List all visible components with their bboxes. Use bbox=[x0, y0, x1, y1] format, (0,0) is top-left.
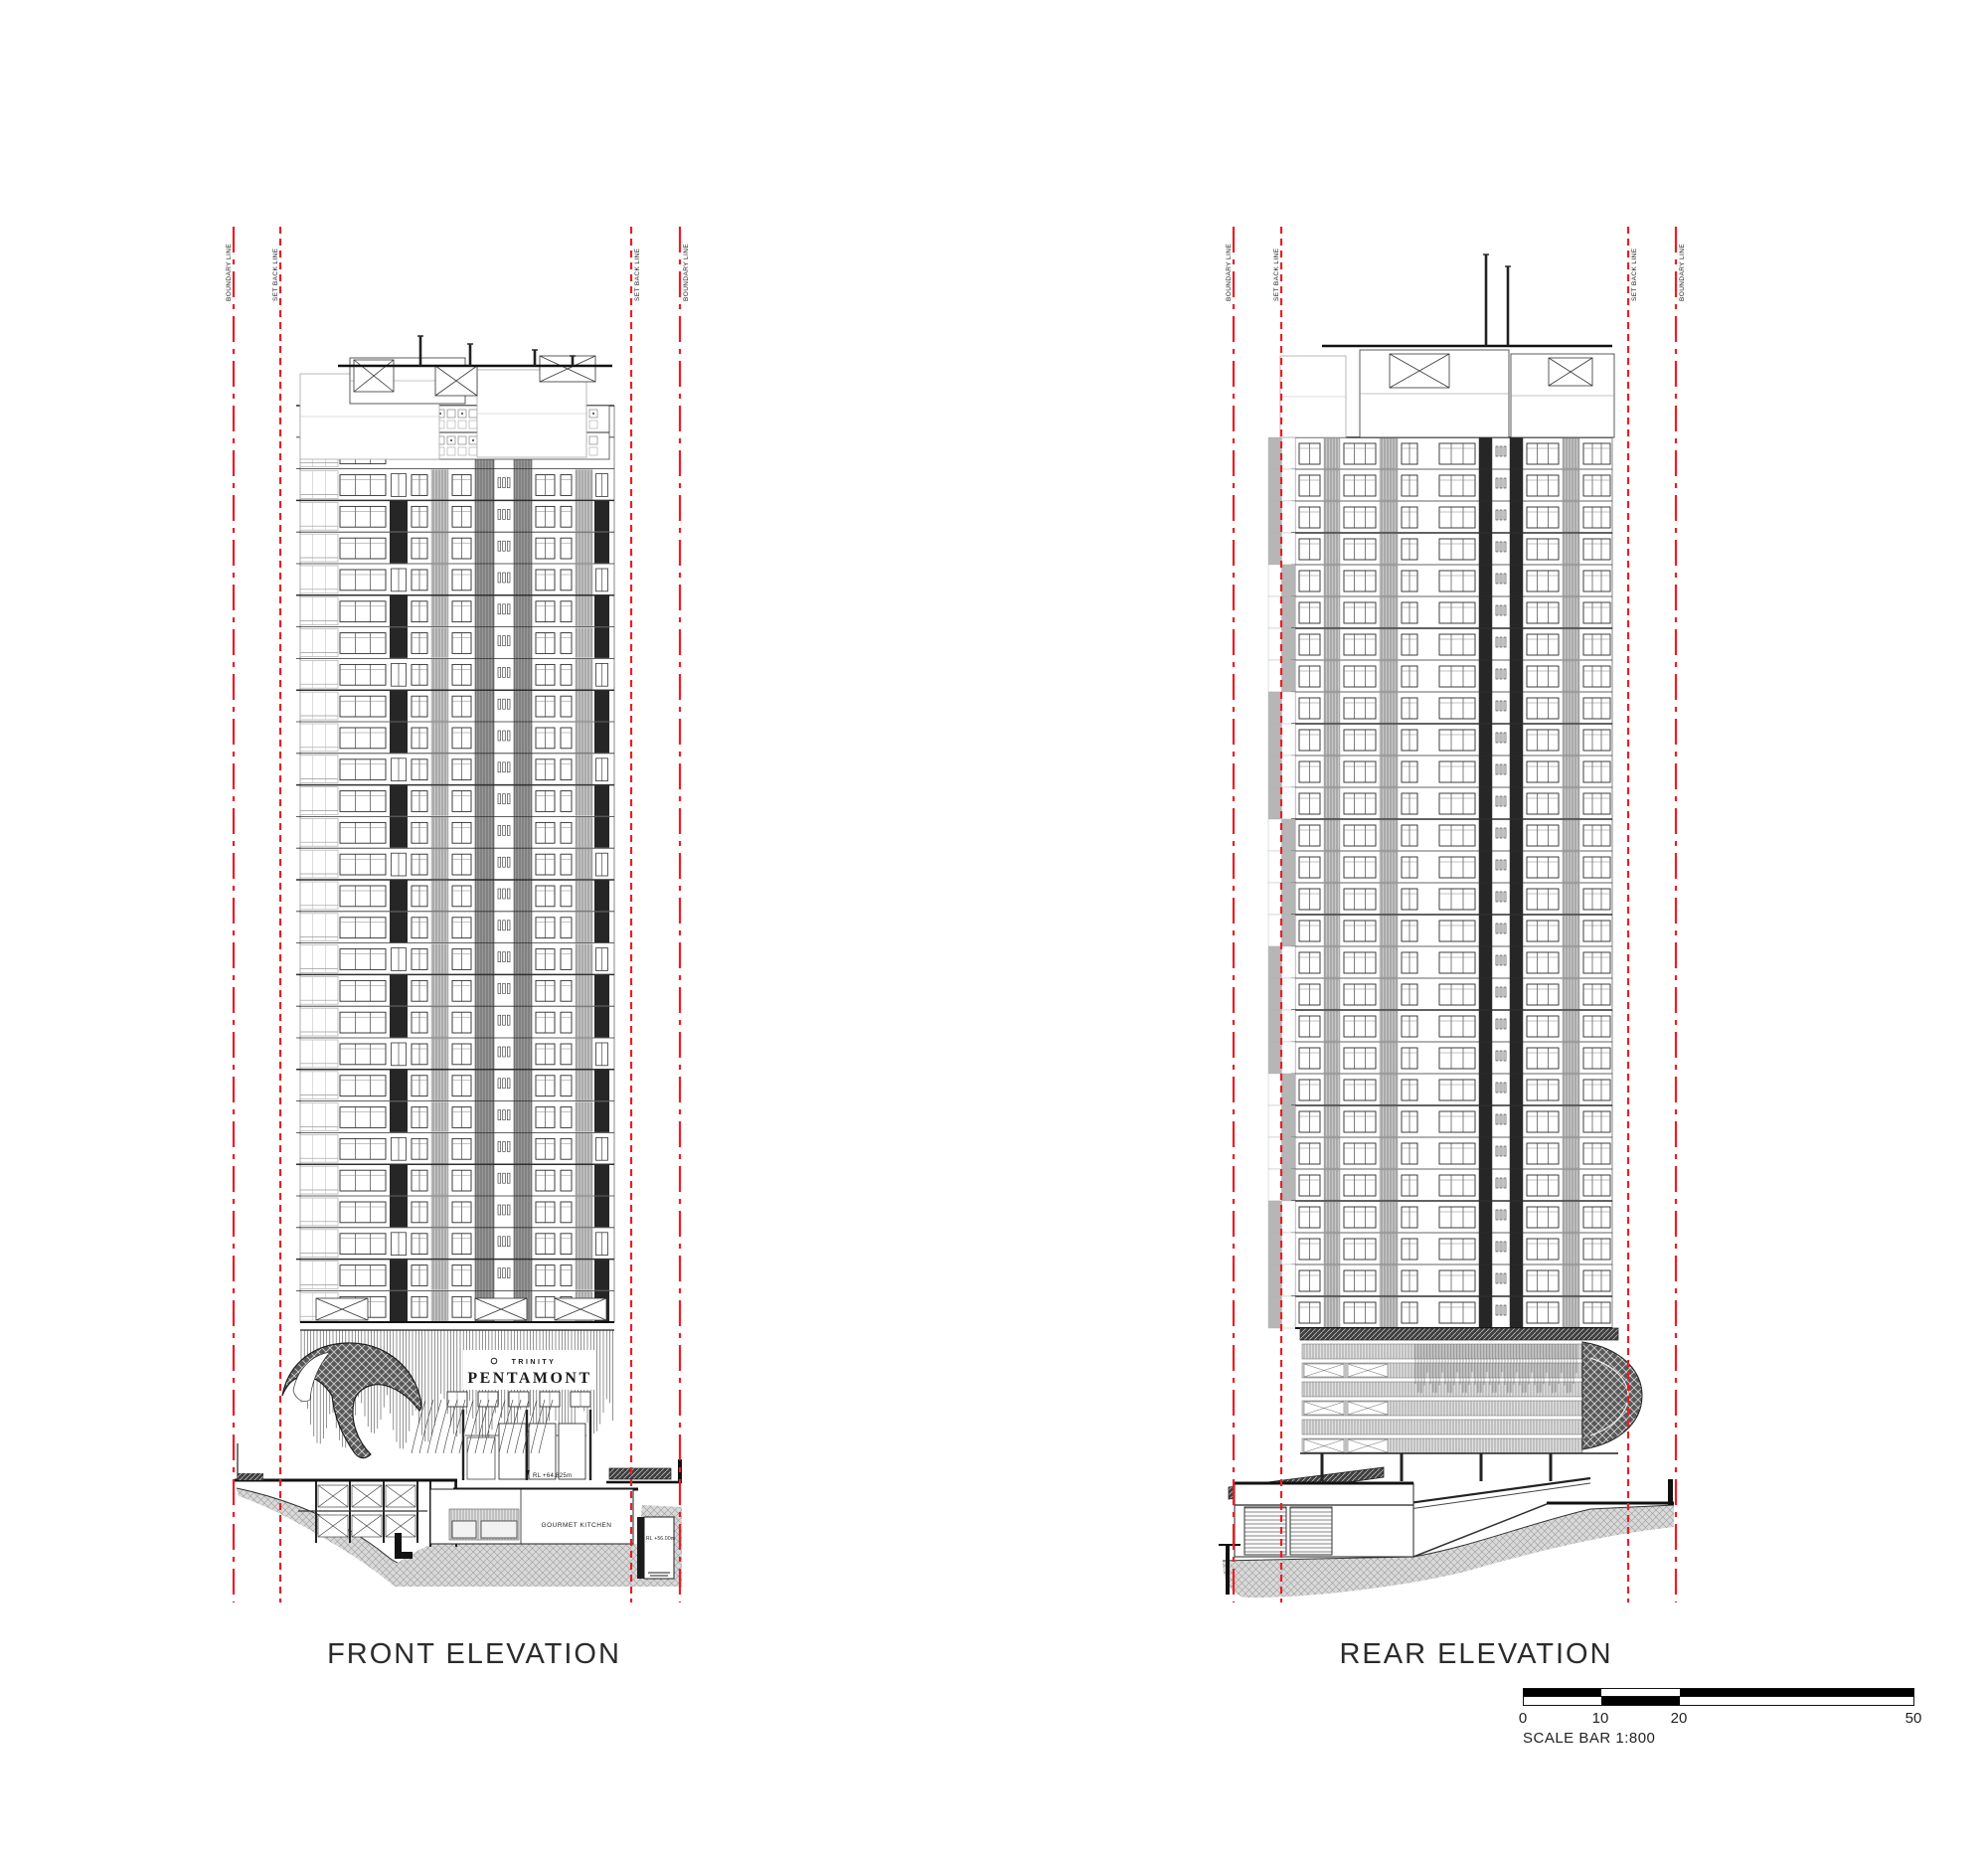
scale-bar-ticks: 0 10 20 50 bbox=[1523, 1710, 1914, 1728]
level-label-lower: RL +56.00m bbox=[646, 1536, 675, 1542]
front-elevation-group: TRINITYPENTAMONTRL +64.825mGOURMET KITCH… bbox=[235, 336, 682, 1587]
scale-segment bbox=[1524, 1689, 1601, 1696]
sign-name: PENTAMONT bbox=[467, 1370, 591, 1387]
boundary-line-label: BOUNDARY LINE bbox=[683, 244, 690, 301]
scale-bar-row-top bbox=[1523, 1688, 1914, 1697]
scale-segment bbox=[1601, 1689, 1680, 1696]
drawing-sheet: TRINITYPENTAMONTRL +64.825mGOURMET KITCH… bbox=[0, 0, 1988, 1854]
rear-elevation-group bbox=[1219, 254, 1674, 1598]
boundary-line-label: BOUNDARY LINE bbox=[226, 244, 233, 301]
level-label-upper: RL +64.825m bbox=[533, 1473, 572, 1479]
front-podium: TRINITYPENTAMONTRL +64.825mGOURMET KITCH… bbox=[235, 1298, 682, 1587]
rear-elevation-title: REAR ELEVATION bbox=[1339, 1638, 1612, 1671]
sign-brand: TRINITY bbox=[512, 1359, 557, 1366]
scale-segment bbox=[1680, 1689, 1913, 1696]
scale-segment bbox=[1601, 1697, 1680, 1705]
scale-tick: 0 bbox=[1519, 1710, 1527, 1727]
scale-bar: 0 10 20 50 SCALE BAR 1:800 bbox=[1523, 1688, 1914, 1747]
setback-line-label: SET BACK LINE bbox=[1273, 248, 1280, 301]
scale-tick: 50 bbox=[1905, 1710, 1922, 1727]
scale-bar-label: SCALE BAR 1:800 bbox=[1523, 1730, 1914, 1747]
elevation-drawing: TRINITYPENTAMONTRL +64.825mGOURMET KITCH… bbox=[0, 0, 1988, 1854]
room-label: GOURMET KITCHEN bbox=[542, 1522, 612, 1529]
setback-line-label: SET BACK LINE bbox=[272, 248, 279, 301]
scale-tick: 20 bbox=[1671, 1710, 1688, 1727]
setback-line-label: SET BACK LINE bbox=[1631, 248, 1638, 301]
scale-bar-row-bottom bbox=[1523, 1697, 1914, 1706]
scale-segment bbox=[1524, 1697, 1601, 1705]
boundary-line-label: BOUNDARY LINE bbox=[1226, 244, 1233, 301]
front-elevation-title: FRONT ELEVATION bbox=[327, 1638, 621, 1671]
scale-segment bbox=[1680, 1697, 1913, 1705]
setback-line-label: SET BACK LINE bbox=[634, 248, 641, 301]
rear-podium bbox=[1219, 1328, 1674, 1598]
boundary-line-label: BOUNDARY LINE bbox=[1679, 244, 1686, 301]
scale-tick: 10 bbox=[1592, 1710, 1609, 1727]
